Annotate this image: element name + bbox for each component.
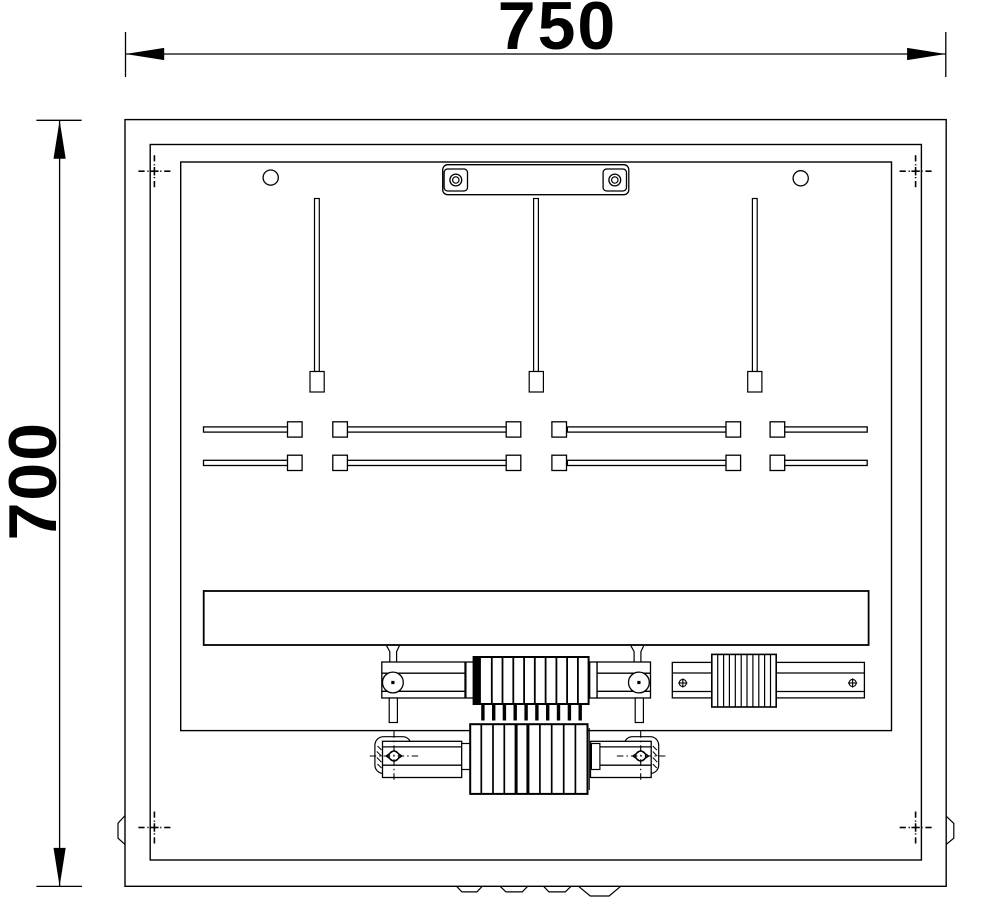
svg-text:750: 750 — [498, 0, 617, 64]
svg-text:700: 700 — [0, 421, 71, 540]
